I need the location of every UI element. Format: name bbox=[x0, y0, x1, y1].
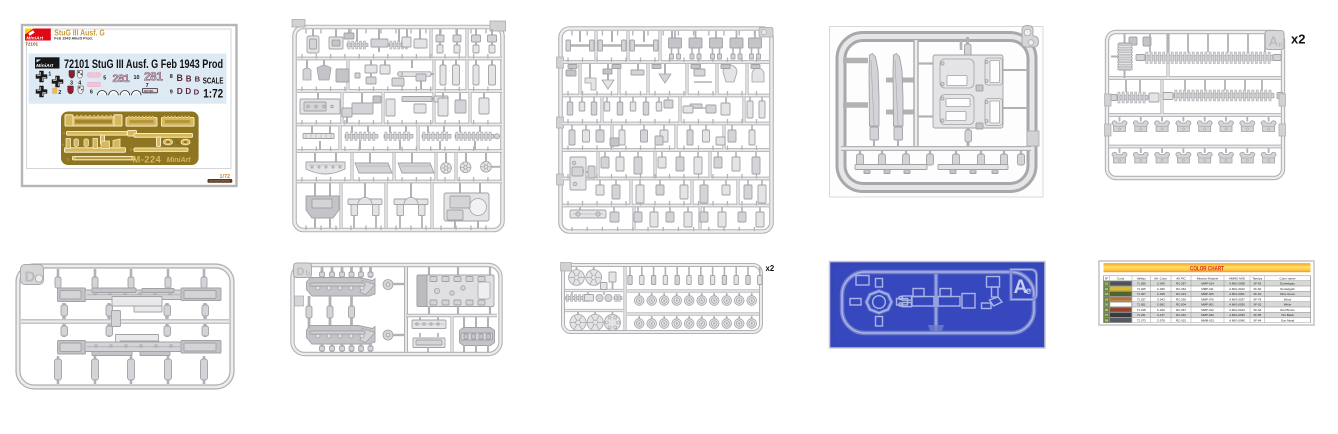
svg-text:C-040: C-040 bbox=[1157, 282, 1165, 286]
svg-text:MiniArt: MiniArt bbox=[26, 36, 43, 41]
svg-text:71.027: 71.027 bbox=[1137, 297, 1146, 301]
svg-text:A.MIG-0913: A.MIG-0913 bbox=[1229, 308, 1245, 312]
svg-text:8: 8 bbox=[170, 74, 173, 80]
svg-text:Color name: Color name bbox=[1280, 277, 1296, 281]
svg-text:MMP-011: MMP-011 bbox=[1201, 287, 1214, 291]
svg-text:6: 6 bbox=[90, 89, 93, 95]
svg-text:Tire Black: Tire Black bbox=[1281, 313, 1294, 317]
svg-text:9: 9 bbox=[170, 89, 173, 95]
svg-text:Feb 1943 Alkett Prod.: Feb 1943 Alkett Prod. bbox=[54, 37, 93, 41]
svg-text:MMM-001: MMM-001 bbox=[1201, 318, 1214, 322]
svg-text:D: D bbox=[194, 87, 200, 96]
svg-text:Red Brown: Red Brown bbox=[1280, 308, 1295, 312]
svg-text:281: 281 bbox=[144, 70, 163, 84]
svg-text:MiniArt: MiniArt bbox=[36, 63, 53, 69]
svg-text:71.025: 71.025 bbox=[1137, 287, 1146, 291]
svg-text:XF-60: XF-60 bbox=[1253, 287, 1261, 291]
svg-text:RC-067: RC-067 bbox=[1176, 308, 1186, 312]
svg-text:A.MIG-0010: A.MIG-0010 bbox=[1229, 287, 1245, 291]
svg-text:MMP-025: MMP-025 bbox=[1201, 292, 1214, 296]
svg-text:03: 03 bbox=[1105, 292, 1109, 296]
svg-text:Tamiya: Tamiya bbox=[1252, 277, 1262, 281]
svg-text:RC-062: RC-062 bbox=[1176, 287, 1186, 291]
svg-text:M-224: M-224 bbox=[133, 154, 162, 165]
svg-text:e: e bbox=[1026, 285, 1032, 297]
svg-text:XF-64: XF-64 bbox=[1253, 308, 1261, 312]
svg-text:COLOR CHART: COLOR CHART bbox=[1190, 266, 1224, 273]
svg-text:1: 1 bbox=[92, 114, 94, 118]
svg-text:2: 2 bbox=[140, 114, 142, 118]
svg-text:9: 9 bbox=[130, 148, 132, 152]
svg-text:Gun Metal: Gun Metal bbox=[1281, 318, 1295, 322]
svg-text:4: 4 bbox=[63, 132, 65, 136]
svg-text:D: D bbox=[177, 86, 183, 96]
svg-text:C-038: C-038 bbox=[1157, 292, 1165, 296]
svg-text:Mr. Color: Mr. Color bbox=[1154, 277, 1167, 281]
svg-text:01: 01 bbox=[1105, 282, 1109, 286]
svg-text:06: 06 bbox=[1105, 308, 1109, 312]
svg-text:281: 281 bbox=[113, 73, 130, 85]
svg-text:11: 11 bbox=[67, 158, 71, 162]
svg-text:3: 3 bbox=[176, 114, 178, 118]
svg-text:Olive Green: Olive Green bbox=[1280, 292, 1296, 296]
svg-text:XF-63: XF-63 bbox=[1253, 282, 1261, 286]
svg-text:RC-004: RC-004 bbox=[1176, 303, 1186, 307]
svg-text:72101: 72101 bbox=[25, 42, 38, 47]
svg-text:D: D bbox=[185, 87, 191, 96]
svg-text:71.018: 71.018 bbox=[1137, 308, 1146, 312]
svg-text:B: B bbox=[195, 75, 201, 84]
svg-text:XF-84: XF-84 bbox=[1253, 318, 1261, 322]
svg-text:71.251: 71.251 bbox=[1137, 313, 1146, 317]
svg-text:MMP-014: MMP-014 bbox=[1201, 282, 1214, 286]
svg-text:D: D bbox=[25, 269, 36, 286]
svg-text:6: 6 bbox=[62, 143, 64, 147]
svg-text:Dunkelgrau: Dunkelgrau bbox=[1280, 282, 1295, 286]
svg-text:x2: x2 bbox=[1291, 32, 1305, 47]
svg-text:A: A bbox=[1269, 34, 1279, 49]
svg-text:A.MIG-0008: A.MIG-0008 bbox=[1229, 282, 1245, 286]
svg-text:RC-023: RC-023 bbox=[1176, 292, 1186, 296]
svg-text:Mission Models: Mission Models bbox=[1197, 277, 1219, 281]
svg-text:White: White bbox=[1284, 303, 1292, 307]
svg-text:SCALE: SCALE bbox=[203, 77, 224, 86]
svg-text:MMP-076: MMP-076 bbox=[1201, 297, 1214, 301]
svg-text:MMP-040: MMP-040 bbox=[1201, 313, 1214, 317]
svg-text:10: 10 bbox=[134, 75, 140, 81]
svg-text:A.MIG-0001: A.MIG-0001 bbox=[1229, 292, 1245, 296]
svg-text:07: 07 bbox=[1105, 313, 1109, 317]
svg-text:XF-62: XF-62 bbox=[1253, 292, 1261, 296]
svg-text:Dunkelgelb: Dunkelgelb bbox=[1280, 287, 1295, 291]
svg-text:x2: x2 bbox=[766, 264, 775, 273]
svg-text:A.MIG-0033: A.MIG-0033 bbox=[1229, 313, 1245, 317]
svg-text:1/72: 1/72 bbox=[220, 174, 231, 180]
svg-text:4: 4 bbox=[78, 80, 81, 86]
svg-text:C-137: C-137 bbox=[1157, 313, 1165, 317]
svg-text:RC-022: RC-022 bbox=[1176, 313, 1186, 317]
svg-text:b: b bbox=[306, 269, 311, 278]
svg-text:A.MIG-0037: A.MIG-0037 bbox=[1229, 297, 1245, 301]
svg-text:NOTEK: NOTEK bbox=[144, 89, 153, 93]
svg-text:B: B bbox=[177, 73, 183, 83]
svg-text:AMMO MIG: AMMO MIG bbox=[1229, 277, 1246, 281]
svg-text:D: D bbox=[297, 266, 305, 278]
svg-text:C-039: C-039 bbox=[1157, 287, 1165, 291]
svg-text:05: 05 bbox=[1105, 303, 1109, 307]
svg-text:AK RC: AK RC bbox=[1176, 277, 1186, 281]
svg-text:Color: Color bbox=[1117, 277, 1124, 281]
svg-text:08: 08 bbox=[1105, 318, 1109, 322]
svg-text:71.007: 71.007 bbox=[1137, 292, 1146, 296]
svg-text:C-029: C-029 bbox=[1157, 308, 1165, 312]
svg-text:B: B bbox=[186, 74, 192, 83]
svg-text:XF-85: XF-85 bbox=[1253, 313, 1261, 317]
svg-text:Vallejo: Vallejo bbox=[1137, 277, 1146, 281]
svg-text:Wood: Wood bbox=[1284, 297, 1292, 301]
svg-text:MMP-001: MMP-001 bbox=[1201, 303, 1214, 307]
svg-text:XF-02: XF-02 bbox=[1253, 303, 1261, 307]
svg-text:XF-78: XF-78 bbox=[1253, 297, 1261, 301]
svg-text:3: 3 bbox=[70, 80, 73, 86]
svg-text:RC-030: RC-030 bbox=[1176, 297, 1186, 301]
svg-text:C-062: C-062 bbox=[1157, 303, 1165, 307]
svg-text:MMP-012: MMP-012 bbox=[1201, 308, 1214, 312]
svg-text:A.MIG-0050: A.MIG-0050 bbox=[1229, 303, 1245, 307]
svg-text:C-043: C-043 bbox=[1157, 297, 1165, 301]
svg-text:2: 2 bbox=[58, 90, 61, 96]
svg-text:C-078: C-078 bbox=[1157, 318, 1165, 322]
svg-text:1: 1 bbox=[48, 72, 51, 78]
svg-text:1:72: 1:72 bbox=[203, 86, 223, 100]
svg-text:10: 10 bbox=[176, 141, 180, 145]
svg-text:71.073: 71.073 bbox=[1137, 318, 1146, 322]
svg-text:71.001: 71.001 bbox=[1137, 303, 1146, 307]
svg-text:A.MIG-0045: A.MIG-0045 bbox=[1229, 318, 1245, 322]
svg-text:fi: fi bbox=[1279, 42, 1283, 49]
svg-text:04: 04 bbox=[1105, 297, 1109, 301]
svg-text:RC-015: RC-015 bbox=[1176, 318, 1186, 322]
svg-text:02: 02 bbox=[1105, 287, 1109, 291]
svg-text:5: 5 bbox=[103, 75, 106, 81]
svg-text:MiniArt: MiniArt bbox=[167, 157, 192, 164]
svg-text:71.056: 71.056 bbox=[1137, 282, 1146, 286]
svg-text:RC-057: RC-057 bbox=[1176, 282, 1186, 286]
